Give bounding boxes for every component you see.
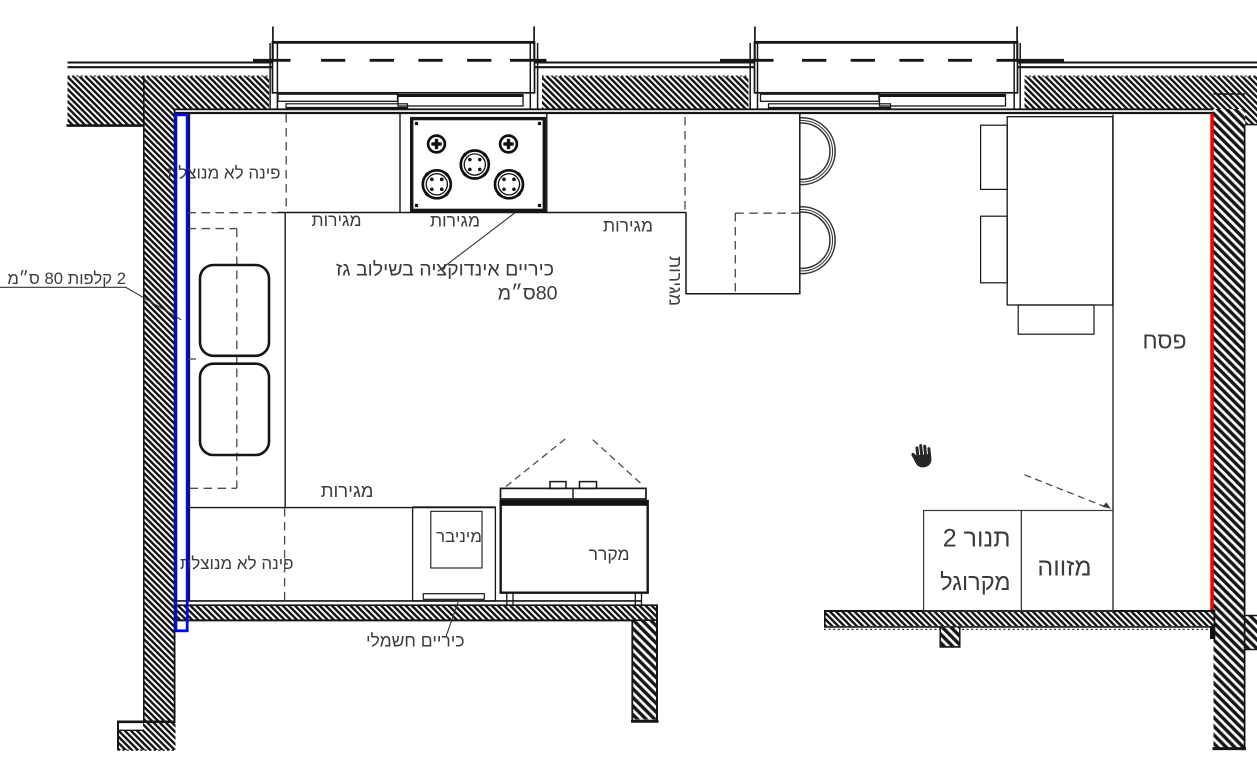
svg-text:‫פינה לא מנוצלת‬: ‫פינה לא מנוצלת‬ xyxy=(180,554,294,573)
svg-text:‫מגירות‬: ‫מגירות‬ xyxy=(312,210,362,230)
svg-text:‫פסח‬: ‫פסח‬ xyxy=(1142,328,1186,354)
svg-text:‫מגירות‬: ‫מגירות‬ xyxy=(430,211,480,231)
svg-text:‫מזווה‬: ‫מזווה‬ xyxy=(1037,554,1091,582)
svg-text:‫מגירות‬: ‫מגירות‬ xyxy=(321,480,374,501)
svg-text:‫כיריים חשמלי‬: ‫כיריים חשמלי‬ xyxy=(366,631,465,651)
svg-text:‫מקרוגל‬: ‫מקרוגל‬ xyxy=(940,569,1010,595)
svg-text:‫תנור 2‬: ‫תנור 2‬ xyxy=(943,525,1011,553)
svg-text:‫מקרר‬: ‫מקרר‬ xyxy=(589,544,630,564)
svg-text:‫2 קלפות 80 ס״מ‬: ‫2 קלפות 80 ס״מ‬ xyxy=(7,269,126,288)
svg-text:‫מגירות‬: ‫מגירות‬ xyxy=(666,256,686,306)
svg-text:‫פינה לא מנוצלת‬: ‫פינה לא מנוצלת‬ xyxy=(167,164,281,183)
svg-text:‫כיריים אינדוקציה בשילוב גז‬: ‫כיריים אינדוקציה בשילוב גז‬ xyxy=(336,259,554,281)
svg-text:‫מגירות‬: ‫מגירות‬ xyxy=(603,216,653,236)
svg-text:‫80ס״מ‬: ‫80ס״מ‬ xyxy=(498,283,558,305)
svg-text:‫מיניבר‬: ‫מיניבר‬ xyxy=(436,527,482,546)
